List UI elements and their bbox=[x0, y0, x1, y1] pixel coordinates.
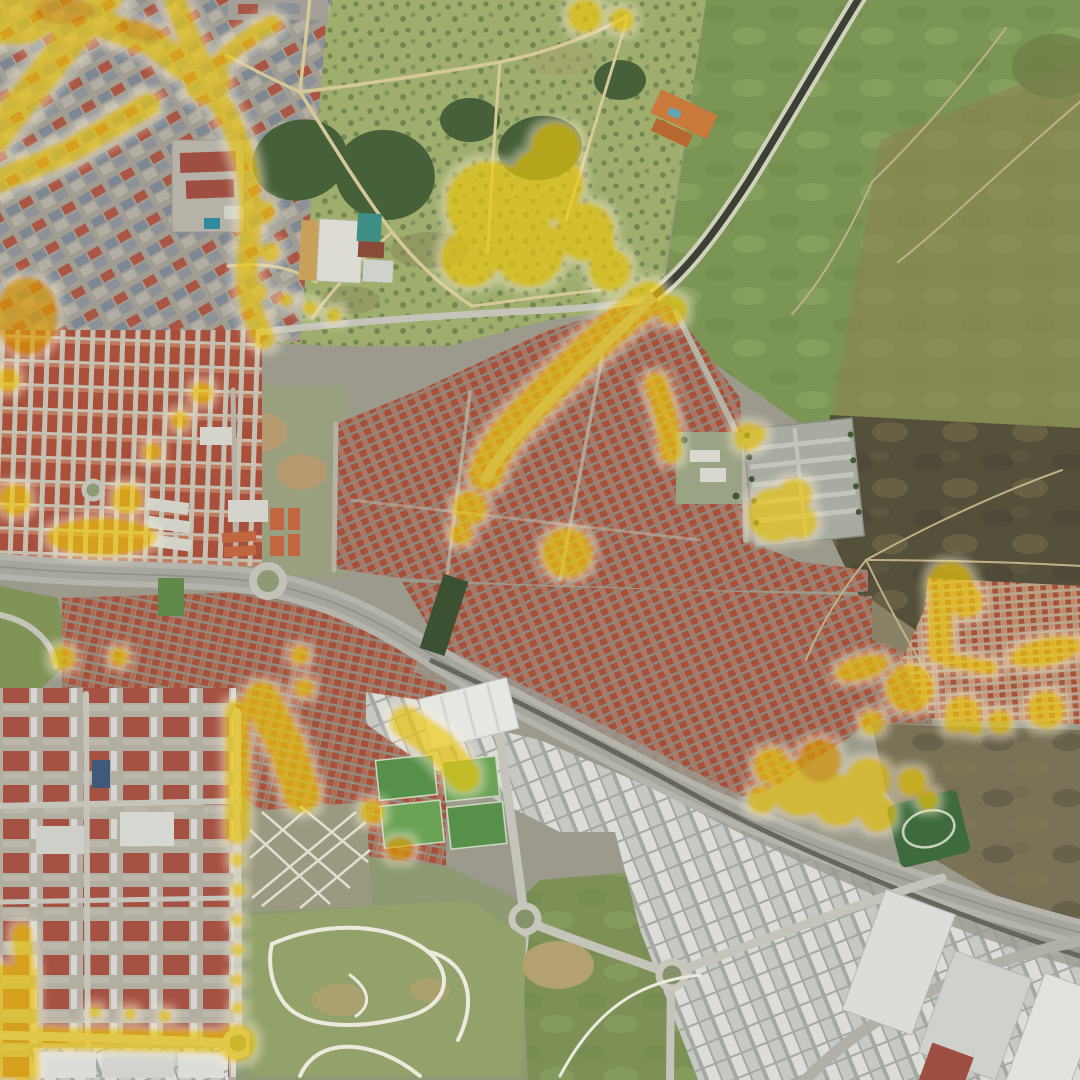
plaza-park bbox=[240, 802, 372, 912]
satellite-map-stage: Satellite imagery with highlighted road … bbox=[0, 0, 1080, 1080]
east-school bbox=[676, 432, 742, 504]
satellite-map[interactable]: Satellite imagery with highlighted road … bbox=[0, 0, 1080, 1080]
curvy-park bbox=[248, 900, 526, 1076]
sports-complex bbox=[298, 210, 396, 285]
